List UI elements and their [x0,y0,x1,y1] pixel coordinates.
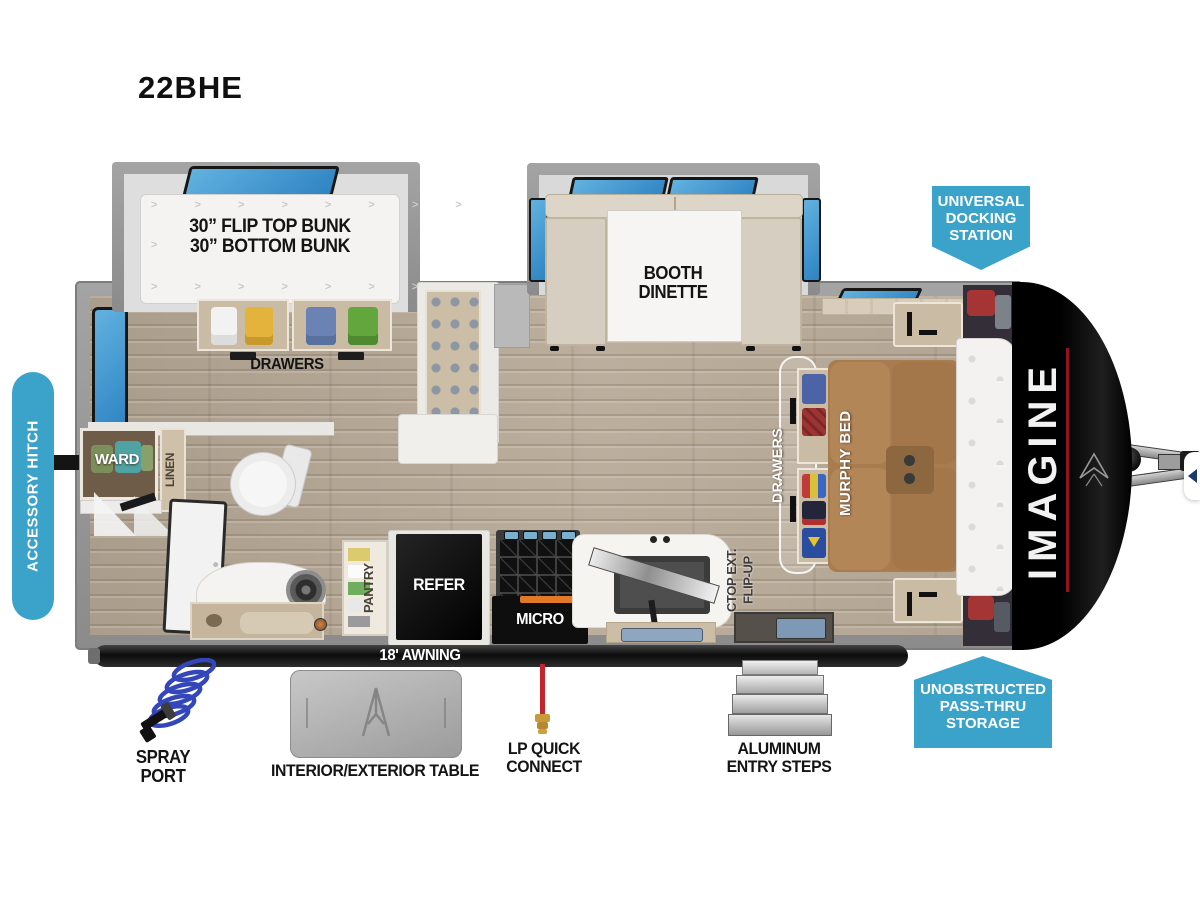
sofa-button [904,473,915,484]
floorplan-page: 22BHE > > > > > > > > > > > > > > > > > … [0,0,1200,900]
grand-design-wings-icon [1076,448,1112,492]
cabinet-handle [907,592,912,616]
table-label: INTERIOR/EXTERIOR TABLE [270,762,480,780]
portable-table [290,670,462,758]
toilet-bowl [230,452,296,516]
vanity-cabinet [190,602,324,640]
faucet-dot [663,536,670,543]
passthru-cargo-top [963,285,1015,346]
awning-label: 18' AWNING [364,648,476,665]
micro-label: MICRO [497,612,583,629]
murphy-bed-label: MURPHY BED [838,406,854,520]
faucet-dot [650,536,657,543]
bench-foot [792,346,801,351]
vanity-knob [206,614,222,627]
entry-step-well [734,612,834,643]
pillow-blue [802,374,826,404]
slide-wall-return [494,284,530,348]
bunk-drawer-right [292,299,392,351]
lp-line [540,664,545,716]
sofa-button [904,455,915,466]
passthru-cargo-bottom [963,588,1015,646]
docking-station-badge: UNIVERSAL DOCKING STATION [932,186,1030,270]
entry-steps [728,660,830,736]
spray-port-hose [132,658,216,750]
drawer-handle [790,398,796,424]
shield-icon [808,537,820,547]
carousel-prev-arrow-icon [1188,469,1197,483]
bunk-drawer-left [197,299,289,351]
cargo-bag-dark [994,602,1010,632]
ward-label: WARD [84,452,150,468]
step-tread [728,714,832,736]
lp-fitting [535,714,550,722]
page-title: 22BHE [138,70,243,106]
cabinet-handle [919,330,937,335]
brand-underline [1066,348,1069,592]
step-tread [736,675,824,694]
bunk-drawers-label: DRAWERS [235,357,339,374]
bench-foot [550,346,559,351]
murphy-drawers-label: DRAWERS [770,424,785,506]
step-tread [732,694,828,714]
passthru-storage-badge: UNOBSTRUCTED PASS-THRU STORAGE [914,656,1052,748]
sink-mat [621,628,703,642]
lp-fitting [538,729,547,734]
table-brand-a-icon [356,684,396,742]
counter-base-cabinet [606,622,716,643]
dinette-bench-right [740,217,802,346]
accessory-hitch-receiver [53,455,79,470]
awning-end-cap [88,648,100,664]
steps-label: ALUMINUM ENTRY STEPS [720,740,837,776]
microwave-handle [520,596,580,603]
burner-cap [523,531,538,540]
lp-label: LP QUICK CONNECT [501,740,587,776]
murphy-mattress [956,338,1016,596]
folded-shirt-blue [306,307,336,345]
carousel-prev-button[interactable] [1184,452,1200,500]
spray-port-label: SPRAY PORT [121,748,205,786]
burner-cap [542,531,557,540]
stove-top [496,530,580,600]
shower-knob [213,562,218,567]
bunk-quilt-chevrons: > > > > > > > > [151,199,479,211]
folded-shirt-white [211,307,237,345]
cargo-bag-red [967,290,995,316]
murphy-drawer-top [797,368,831,464]
nightstand-top [893,302,963,347]
comic-box [802,528,826,558]
cargo-bag-red [968,596,994,620]
flip-up-label: FLIP-UP CTOP EXT. [724,542,757,618]
folded-shirt-green [348,307,378,345]
nightstand-bottom [893,578,963,623]
folded-shirt-yellow [245,307,273,345]
pantry-label: PANTRY [362,546,376,630]
drawer-handle [338,352,364,360]
dinette-window-side-right [802,198,821,282]
toy-box [802,474,826,498]
lp-fitting [537,722,548,729]
bench-foot [746,346,755,351]
hutch-dish-cabinet [425,290,481,422]
dinette-bench-left [545,217,607,346]
faucet-knob [314,618,327,631]
hutch-lower-counter [398,414,498,464]
brand-logotype: IMAGINE [1022,338,1064,602]
game-box [802,501,826,525]
entry-mat [776,618,826,639]
stove-grate [500,540,576,596]
bunk-window [182,166,340,197]
dinette-label: BOOTH DINETTE [617,264,729,302]
table-mark [306,698,308,728]
rear-wall-window [92,307,128,433]
vanity-drawer [240,612,314,634]
drawer-handle [790,496,796,522]
sofa-strap [886,446,934,494]
cabinet-handle [907,312,912,336]
accessory-hitch-badge: ACCESSORY HITCH [12,372,54,620]
bench-foot [596,346,605,351]
step-tread [742,660,818,675]
murphy-drawer-bottom [797,468,831,564]
refer-label: REFER [400,576,478,594]
table-mark [444,698,446,728]
cargo-bag-gray [995,295,1011,329]
blanket-plaid [802,408,826,436]
burner-cap [504,531,519,540]
cabinet-handle [919,592,937,597]
linen-label: LINEN [164,436,177,504]
bunk-label: 30” FLIP TOP BUNK 30” BOTTOM BUNK [158,217,381,257]
